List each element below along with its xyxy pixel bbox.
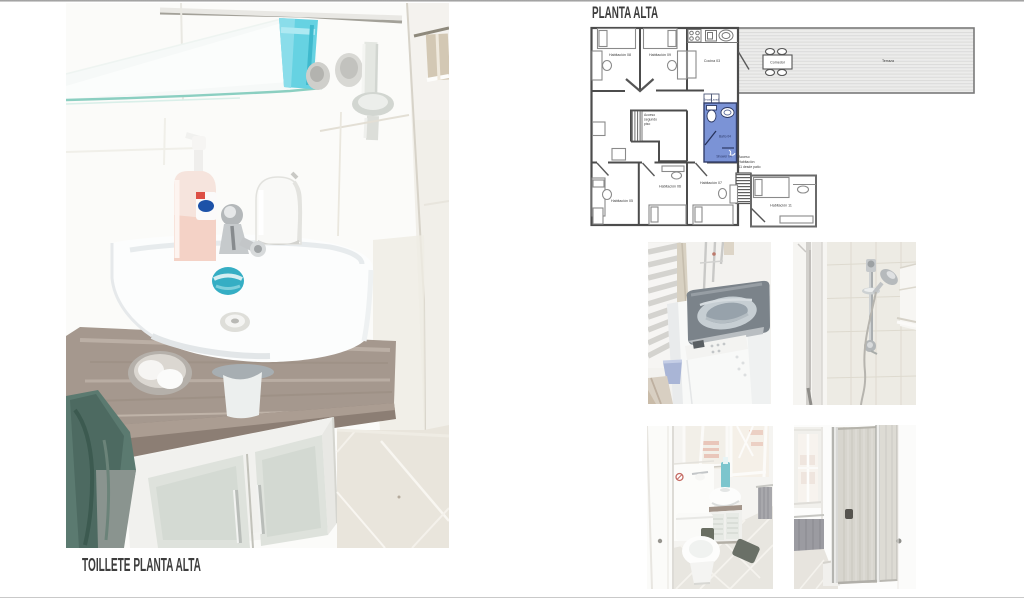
svg-text:Habitación 09: Habitación 09 [649,53,671,57]
svg-text:segundo: segundo [644,118,657,122]
svg-text:Habitación 07: Habitación 07 [700,181,722,185]
svg-text:Habitación 05: Habitación 05 [611,199,633,203]
svg-text:Baño 04: Baño 04 [719,135,731,139]
svg-text:Terraza: Terraza [882,59,894,63]
svg-text:Shower 04: Shower 04 [716,155,731,159]
svg-text:11 desde patio: 11 desde patio [739,165,761,169]
svg-text:piso: piso [644,122,650,126]
svg-text:Cocina 03: Cocina 03 [704,59,720,63]
svg-text:Habitación 08: Habitación 08 [609,53,631,57]
svg-text:Habitación 06: Habitación 06 [659,185,681,189]
svg-text:Acceso: Acceso [739,155,750,159]
svg-text:Comedor: Comedor [770,61,786,65]
svg-text:Acceso: Acceso [644,113,655,117]
svg-text:Lavad.: Lavad. [711,97,719,101]
svg-text:Habitación 11: Habitación 11 [770,204,792,208]
svg-text:Habitación: Habitación [739,160,755,164]
